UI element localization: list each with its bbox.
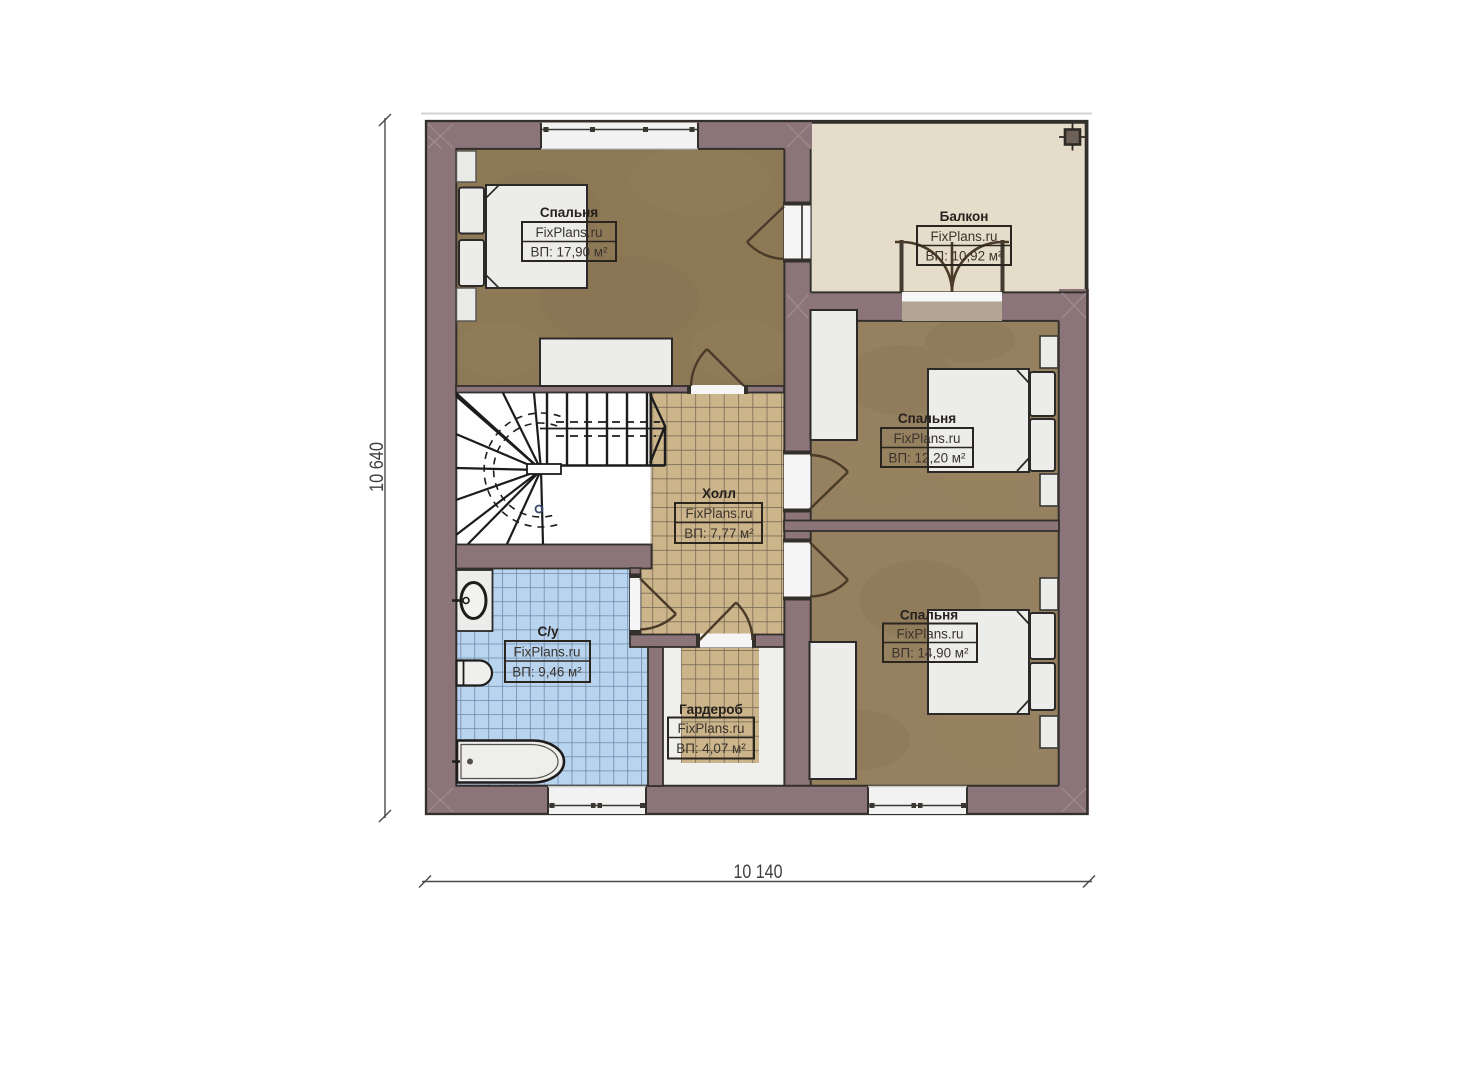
svg-text:10 640: 10 640 (366, 442, 388, 492)
svg-text:ВП: 14,90 м²: ВП: 14,90 м² (892, 646, 969, 661)
svg-text:Спальня: Спальня (900, 608, 958, 623)
svg-text:Холл: Холл (702, 486, 736, 501)
svg-text:10 140: 10 140 (734, 861, 783, 883)
svg-text:ВП: 10,92 м²: ВП: 10,92 м² (926, 249, 1003, 264)
svg-text:FixPlans.ru: FixPlans.ru (514, 645, 581, 660)
svg-text:ВП: 7,77 м²: ВП: 7,77 м² (684, 526, 754, 541)
svg-text:ВП: 9,46 м²: ВП: 9,46 м² (512, 665, 582, 680)
svg-text:ВП: 4,07 м²: ВП: 4,07 м² (676, 741, 746, 756)
svg-text:FixPlans.ru: FixPlans.ru (897, 627, 964, 642)
svg-text:Балкон: Балкон (940, 209, 989, 224)
svg-text:FixPlans.ru: FixPlans.ru (536, 225, 603, 240)
svg-text:FixPlans.ru: FixPlans.ru (894, 431, 961, 446)
svg-text:Спальня: Спальня (898, 411, 956, 426)
svg-text:FixPlans.ru: FixPlans.ru (931, 229, 998, 244)
svg-text:Спальня: Спальня (540, 205, 598, 220)
svg-text:FixPlans.ru: FixPlans.ru (678, 721, 745, 736)
svg-text:FixPlans.ru: FixPlans.ru (686, 506, 753, 521)
svg-text:ВП: 17,90 м²: ВП: 17,90 м² (531, 245, 608, 260)
svg-text:Гардероб: Гардероб (679, 702, 743, 717)
svg-text:С/у: С/у (537, 624, 559, 639)
svg-text:ВП: 12,20 м²: ВП: 12,20 м² (889, 451, 966, 466)
